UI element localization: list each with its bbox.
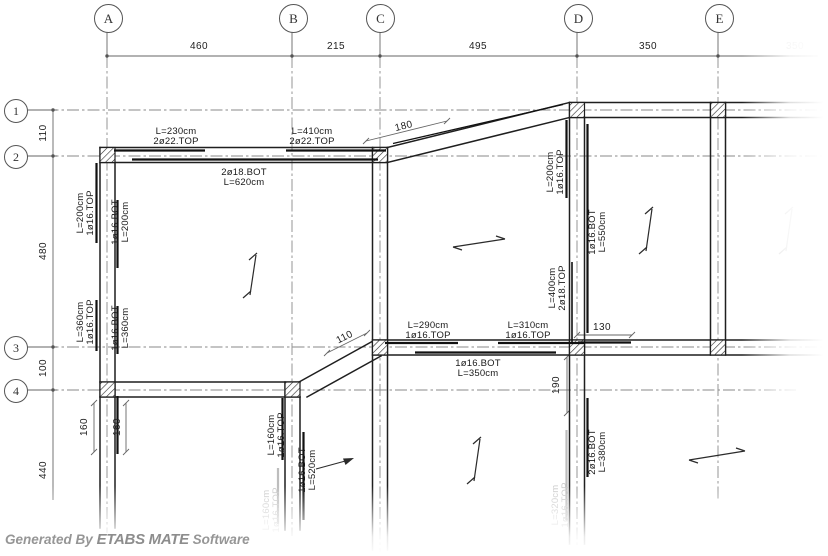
leader-arrow (316, 458, 354, 469)
dim-top-cd: 495 (469, 42, 487, 52)
beam-label-col-b-upper-left: L=160cm 1ø16.TOP (267, 412, 287, 457)
plan-drawing (0, 0, 828, 556)
grid-bubble-d: D (564, 4, 593, 33)
grid-label: 1 (13, 104, 19, 119)
watermark-software: Software (193, 532, 250, 547)
beam-label-col-b-lower-right: 1ø16.BOT L=520cm (298, 447, 318, 492)
grid-label: 2 (13, 150, 19, 165)
dim-left-23: 480 (39, 242, 49, 260)
grid-bubble-4: 4 (4, 379, 28, 403)
dim-top-beyond-e: 350 (786, 42, 804, 52)
beam-label-row2-left-top: L=230cm 2ø22.TOP (153, 127, 198, 147)
grid-label: 3 (13, 341, 19, 356)
grid-centerlines (26, 56, 828, 552)
watermark-brand: ETABS MATE (97, 531, 189, 548)
grid-label: B (289, 11, 298, 27)
grid-bubble-b: B (279, 4, 308, 33)
beam-label-col-a-upper-right: 1ø16.BOT L=200cm (111, 199, 131, 244)
grid-bubble-c: C (366, 4, 395, 33)
grid-label: 4 (13, 384, 19, 399)
beam-label-col-a-upper-left: L=200cm 1ø16.TOP (76, 190, 96, 235)
watermark-generated-by: Generated By (5, 532, 93, 547)
dim-160-b: 160 (113, 418, 123, 436)
grid-bubble-3: 3 (4, 336, 28, 360)
structural-plan-canvas: A B C D E 1 2 3 4 460 215 495 350 350 11… (0, 0, 828, 556)
beam-label-col-d-mid-left: L=400cm 2ø18.TOP (548, 265, 568, 310)
grid-bubble-e: E (705, 4, 734, 33)
watermark: Generated By ETABS MATE Software (5, 531, 250, 548)
beam-label-col-d-lower-right: 2ø16.BOT L=380cm (588, 429, 608, 474)
grid-label: A (104, 11, 113, 27)
dim-top-ab: 460 (190, 42, 208, 52)
grid-bubble-1: 1 (4, 99, 28, 123)
dimension-lines (26, 31, 818, 500)
beam-label-col-a-lower-right: 1ø16.BOT L=360cm (111, 305, 131, 350)
grid-label: E (716, 11, 724, 27)
beam-label-col-d-upper-right: 1ø16.BOT L=550cm (588, 209, 608, 254)
grid-bubble-a: A (94, 4, 123, 33)
dim-left-34: 100 (39, 359, 49, 377)
beam-label-col-a-lower-left: L=360cm 1ø16.TOP (76, 299, 96, 344)
beam-label-row3-bottom: 1ø16.BOT L=350cm (455, 359, 500, 379)
beam-label-row2-bottom: 2ø18.BOT L=620cm (221, 168, 266, 188)
dim-190: 190 (552, 376, 562, 394)
beam-label-row3-right-top: L=310cm 1ø16.TOP (505, 321, 550, 341)
dim-160-a: 160 (80, 418, 90, 436)
beam-label-row2-right-top: L=410cm 2ø22.TOP (289, 127, 334, 147)
dim-top-bc: 215 (327, 42, 345, 52)
grid-label: D (574, 11, 583, 27)
dim-top-de: 350 (639, 42, 657, 52)
beam-outlines (100, 103, 824, 551)
dim-left-below-4: 440 (39, 461, 49, 479)
dim-130: 130 (593, 323, 611, 333)
beam-label-row3-left-top: L=290cm 1ø16.TOP (405, 321, 450, 341)
beam-label-col-d-lower-left-faint: L=320cm 1ø16.TOP (551, 482, 571, 527)
grid-bubble-2: 2 (4, 145, 28, 169)
grid-label: C (376, 11, 385, 27)
beam-label-col-d-upper-left: L=200cm 1ø16.TOP (546, 149, 566, 194)
beam-label-col-b-lower-left-faint: L=160cm 1ø16.TOP (262, 487, 282, 532)
dim-left-12: 110 (39, 124, 49, 141)
